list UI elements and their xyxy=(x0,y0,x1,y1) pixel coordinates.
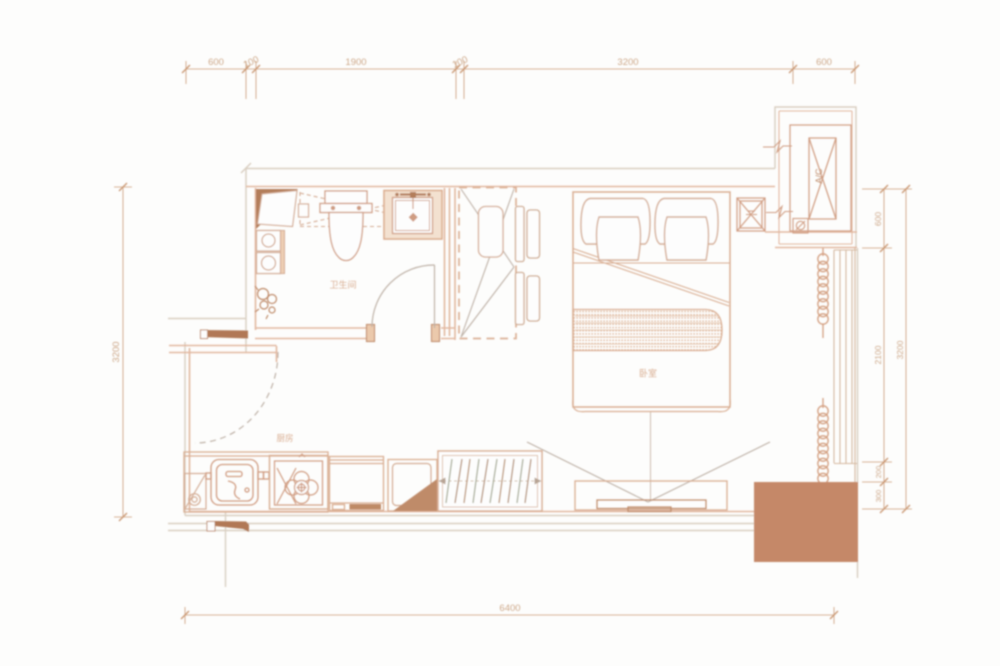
svg-text:600: 600 xyxy=(816,57,832,68)
svg-text:600: 600 xyxy=(208,57,224,68)
svg-text:3200: 3200 xyxy=(111,341,122,362)
svg-text:卧室: 卧室 xyxy=(639,368,657,379)
svg-text:A/C: A/C xyxy=(814,168,824,184)
svg-text:6400: 6400 xyxy=(499,603,520,614)
svg-text:卫生间: 卫生间 xyxy=(329,279,356,290)
svg-text:厨房: 厨房 xyxy=(276,433,293,443)
svg-text:300: 300 xyxy=(874,490,883,503)
svg-text:1900: 1900 xyxy=(345,57,366,68)
svg-text:3200: 3200 xyxy=(617,57,638,68)
svg-text:200: 200 xyxy=(874,466,883,479)
svg-text:2100: 2100 xyxy=(873,345,883,364)
svg-text:3200: 3200 xyxy=(895,340,905,359)
svg-text:600: 600 xyxy=(873,212,883,226)
